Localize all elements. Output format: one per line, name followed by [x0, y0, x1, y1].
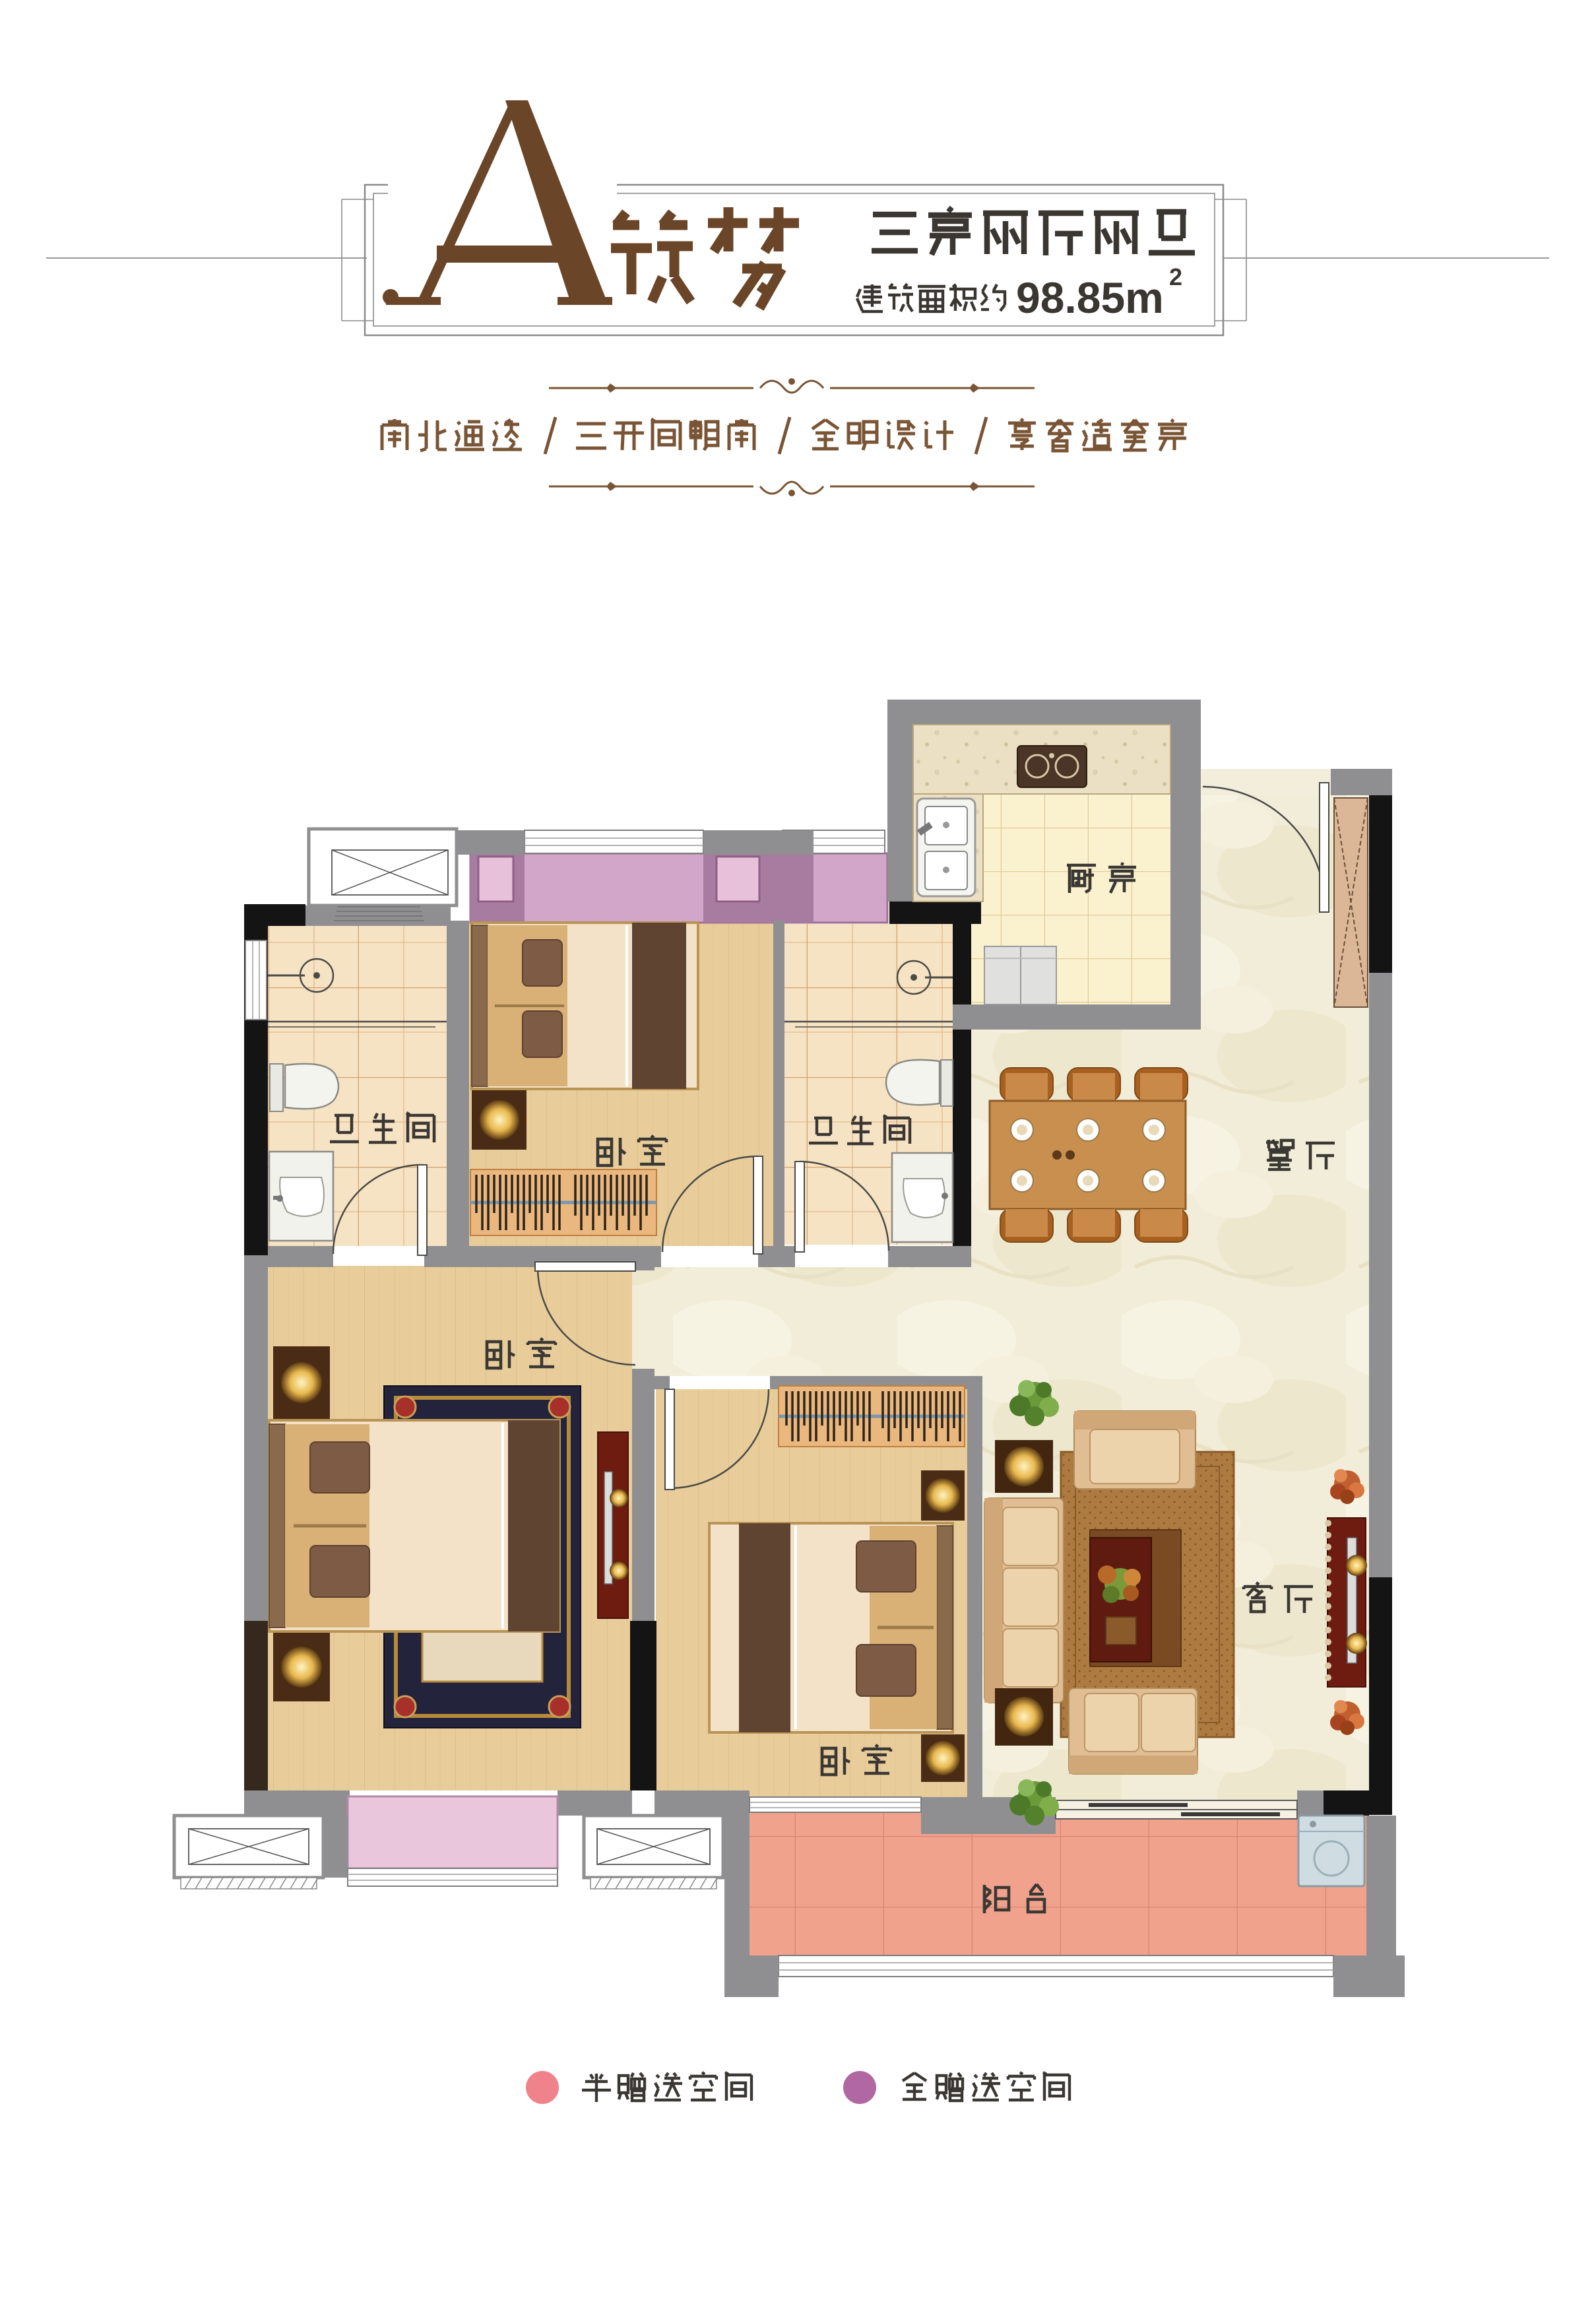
svg-text:98.85m: 98.85m	[1016, 273, 1164, 322]
svg-text:2: 2	[1169, 263, 1182, 290]
